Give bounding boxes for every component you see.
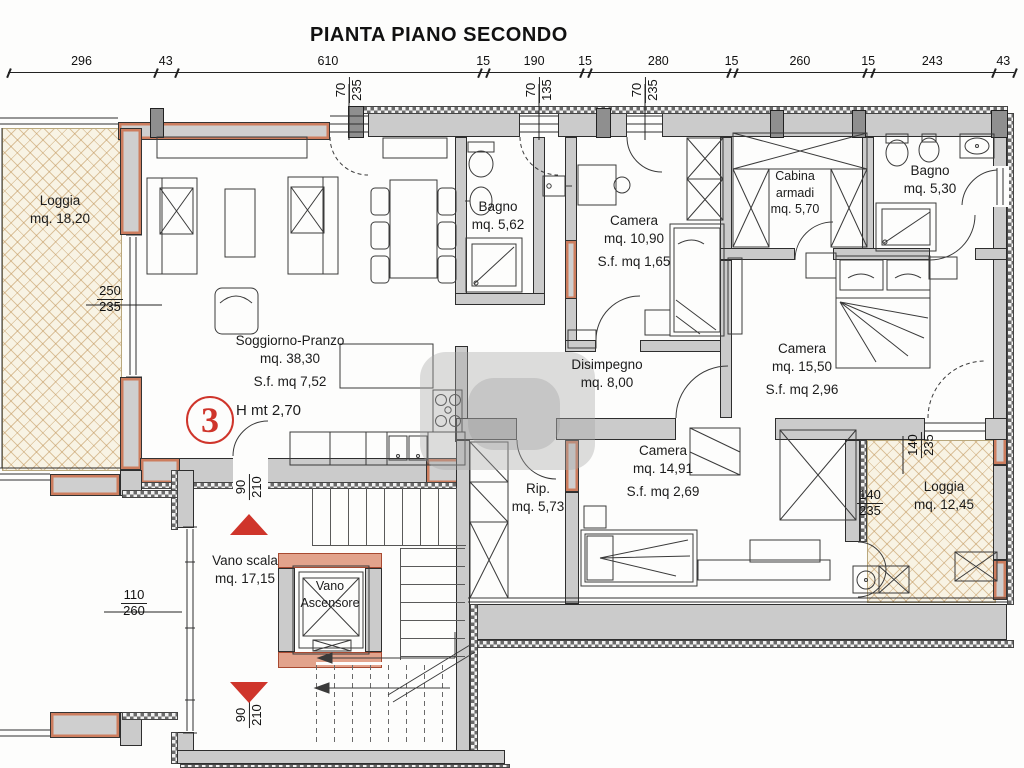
stairs-annotations xyxy=(315,632,475,702)
dim-top-window-1: 70235 xyxy=(334,68,364,112)
sofa xyxy=(147,177,338,274)
dim-loggia-left-window: 250235 xyxy=(88,284,132,314)
dim-stair-door-top: 90210 xyxy=(234,465,264,509)
room-label-cabina-armadi: Cabina armadimq. 5,70 xyxy=(764,168,826,218)
watermark-inner xyxy=(468,378,560,450)
bathroom-fixtures xyxy=(465,134,994,292)
floor-plan: PIANTA PIANO SECONDO 2964361015190152801… xyxy=(0,0,1024,768)
laundry-fixtures xyxy=(853,552,997,593)
room-label-camera3: Cameramq. 14,91S.f. mq 2,69 xyxy=(608,442,718,500)
sideboard xyxy=(157,137,447,158)
room-label-camera1: Cameramq. 10,90S.f. mq 1,65 xyxy=(578,212,690,270)
room-label-loggia-right: Loggiamq. 12,45 xyxy=(892,478,996,514)
dim-top-window-2: 70135 xyxy=(524,68,554,112)
room-label-loggia-left: Loggiamq. 18,20 xyxy=(8,192,112,228)
room-label-vano-scala: Vano scalamq. 17,15 xyxy=(190,552,300,588)
room-label-rip: Rip.mq. 5,73 xyxy=(502,480,574,516)
stair-direction-triangle-bottom xyxy=(230,682,268,703)
stair-direction-triangle-top xyxy=(230,514,268,535)
dim-loggia-right-window-h: 140235 xyxy=(848,488,892,518)
dining-table xyxy=(371,180,456,283)
room-label-disimpegno: Disimpegnomq. 8,00 xyxy=(552,356,662,392)
dim-top-window-3: 70235 xyxy=(630,68,660,112)
dim-stair-window: 110260 xyxy=(112,588,156,618)
coffee-table xyxy=(225,189,255,257)
room-label-vano-ascensore: Vano Ascensore xyxy=(295,578,365,611)
dim-loggia-right-window-v: 140235 xyxy=(906,423,936,467)
room-label-bagno1: Bagnomq. 5,62 xyxy=(462,198,534,234)
room-label-bagno2: Bagnomq. 5,30 xyxy=(888,162,972,198)
room-label-camera2: Cameramq. 15,50S.f. mq 2,96 xyxy=(752,340,852,398)
room-label-soggiorno: Soggiorno-Pranzomq. 38,30S.f. mq 7,52 xyxy=(205,332,375,390)
armchair xyxy=(215,288,258,334)
ceiling-height-label: H mt 2,70 xyxy=(236,402,301,419)
unit-number-badge: 3 xyxy=(186,396,234,444)
